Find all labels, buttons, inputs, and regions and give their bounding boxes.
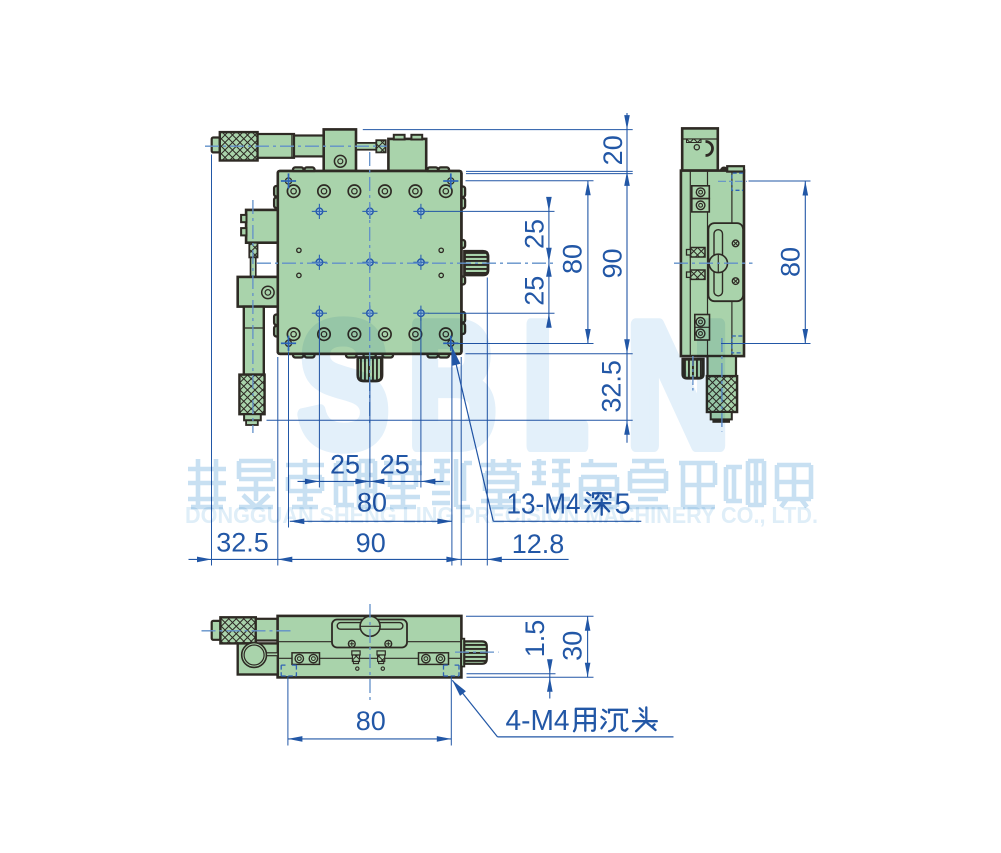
svg-text:B: B bbox=[408, 286, 497, 484]
svg-text:L: L bbox=[523, 286, 588, 484]
svg-text:N: N bbox=[626, 286, 730, 484]
svg-text:90: 90 bbox=[598, 248, 628, 278]
svg-text:S: S bbox=[298, 286, 389, 484]
svg-text:DONGGUAN SHENG LING PRECISION: DONGGUAN SHENG LING PRECISION MACHINERY … bbox=[185, 502, 818, 528]
svg-text:32.5: 32.5 bbox=[216, 528, 269, 558]
svg-text:4-M4: 4-M4 bbox=[506, 705, 570, 737]
svg-text:12.8: 12.8 bbox=[512, 529, 565, 559]
svg-text:25: 25 bbox=[520, 219, 550, 249]
svg-text:80: 80 bbox=[356, 706, 386, 736]
svg-text:80: 80 bbox=[776, 247, 806, 277]
svg-text:90: 90 bbox=[356, 528, 386, 558]
svg-text:32.5: 32.5 bbox=[597, 360, 627, 413]
svg-text:30: 30 bbox=[558, 631, 588, 661]
svg-text:20: 20 bbox=[598, 135, 628, 165]
svg-text:80: 80 bbox=[558, 244, 588, 274]
svg-text:1.5: 1.5 bbox=[520, 620, 550, 658]
